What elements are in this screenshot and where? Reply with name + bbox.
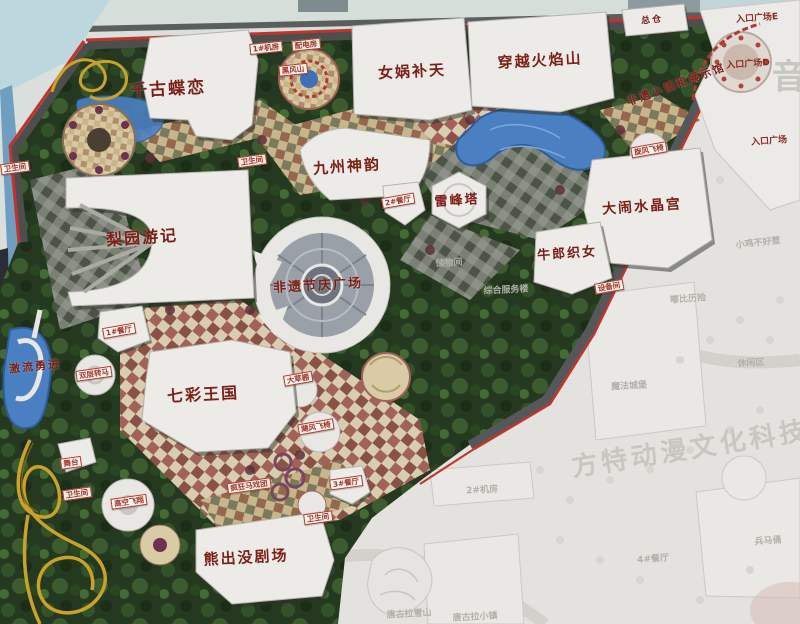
building-nuwa-butian bbox=[352, 18, 472, 120]
park-map-plan bbox=[0, 0, 800, 624]
ride-jufeng-feiyi bbox=[300, 412, 340, 452]
ride-carousel bbox=[75, 355, 115, 395]
park-map-photo: 千古蝶恋女娲补天穿越火焰山总仓九州神韵梨园游记雷峰塔大闹水晶宫牛郎织女非遗节庆广… bbox=[0, 0, 800, 624]
building-zongcang bbox=[622, 4, 688, 36]
amphitheater bbox=[362, 353, 410, 401]
building-niulang-zhinv bbox=[534, 222, 612, 294]
building-chuanyue-huoyanshan bbox=[468, 12, 614, 112]
